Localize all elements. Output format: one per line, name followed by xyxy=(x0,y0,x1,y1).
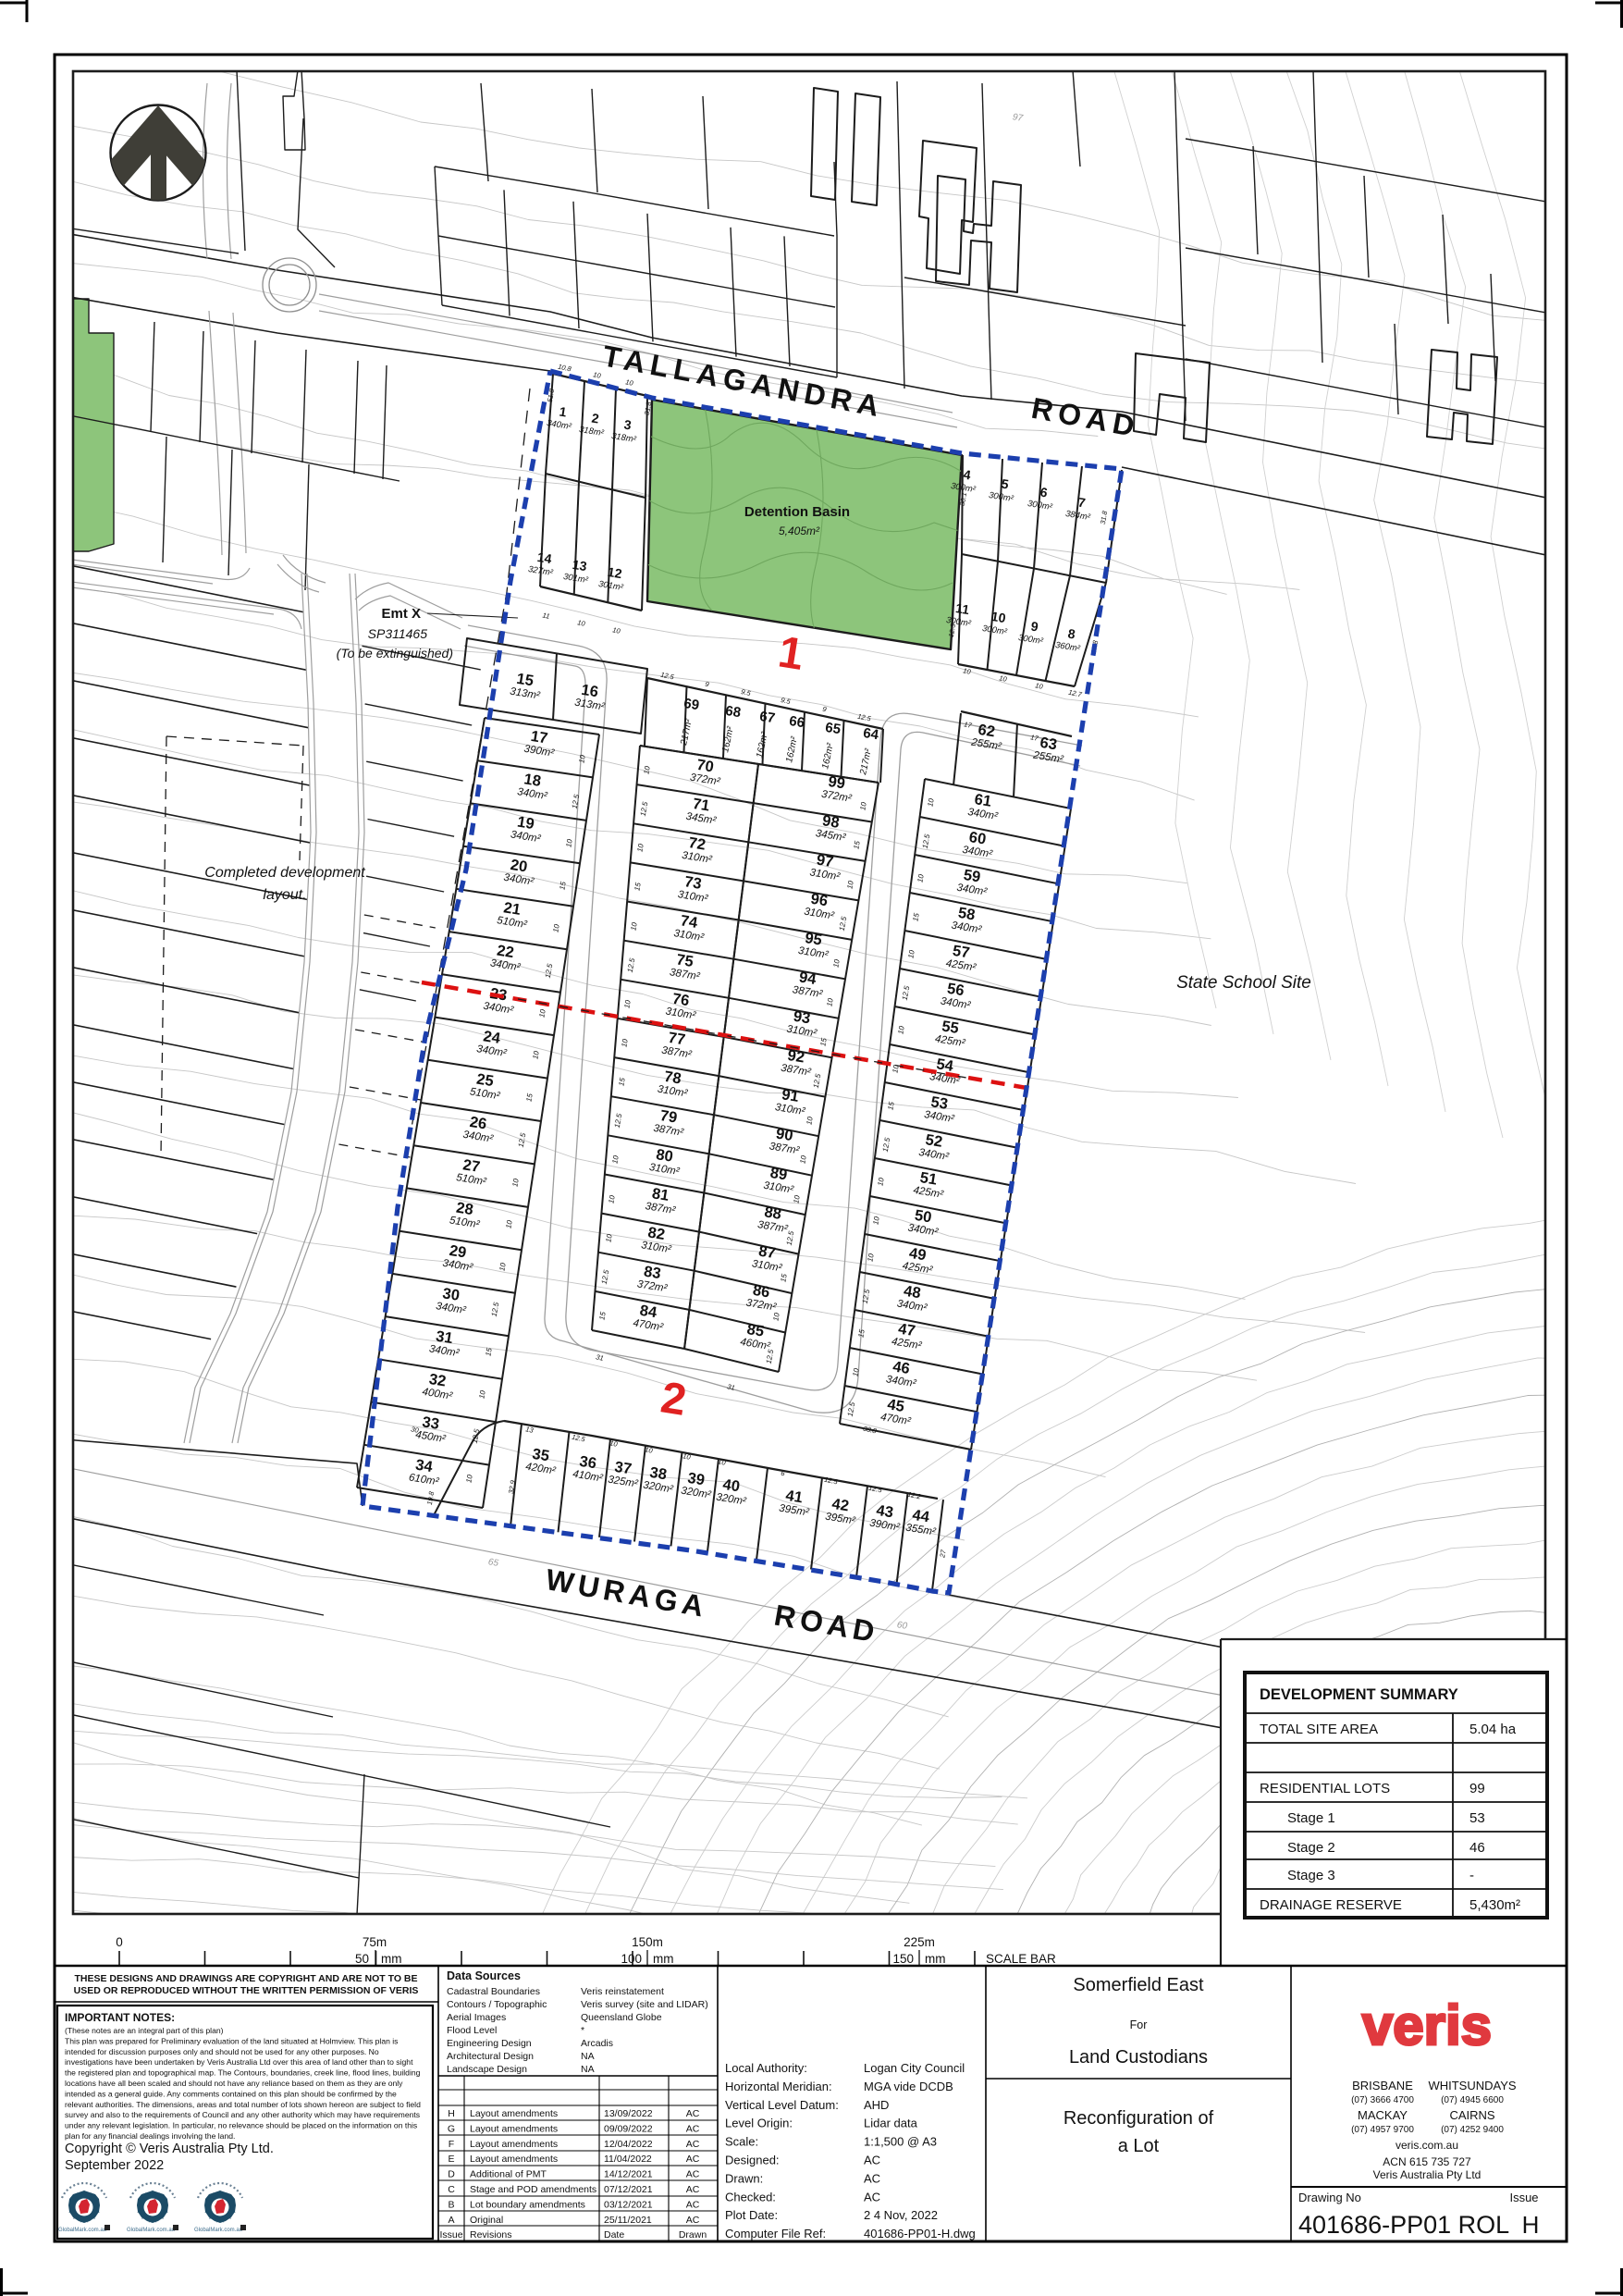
svg-text:Contours / Topographic: Contours / Topographic xyxy=(447,1999,547,2010)
svg-text:MGA vide DCDB: MGA vide DCDB xyxy=(864,2080,953,2093)
svg-text:Emt X: Emt X xyxy=(381,606,421,622)
svg-text:SCALE BAR: SCALE BAR xyxy=(986,1952,1056,1966)
svg-text:survey and also to the require: survey and also to the requirements of C… xyxy=(65,2110,420,2119)
svg-text:AC: AC xyxy=(686,2123,700,2134)
svg-text:14/12/2021: 14/12/2021 xyxy=(604,2169,653,2180)
svg-text:13: 13 xyxy=(572,557,588,574)
svg-text:intended for discussion purpos: intended for discussion purposes only an… xyxy=(65,2047,379,2056)
svg-text:DEVELOPMENT SUMMARY: DEVELOPMENT SUMMARY xyxy=(1260,1686,1458,1703)
svg-text:DRAINAGE RESERVE: DRAINAGE RESERVE xyxy=(1260,1897,1402,1913)
svg-text:25/11/2021: 25/11/2021 xyxy=(604,2215,652,2226)
svg-text:THESE DESIGNS AND DRAWINGS ARE: THESE DESIGNS AND DRAWINGS ARE COPYRIGHT… xyxy=(74,1973,417,1984)
svg-text:USED OR REPRODUCED WITHOUT THE: USED OR REPRODUCED WITHOUT THE WRITTEN P… xyxy=(74,1985,419,1996)
svg-text:WHITSUNDAYS: WHITSUNDAYS xyxy=(1428,2079,1516,2092)
svg-text:Lidar data: Lidar data xyxy=(864,2117,918,2130)
svg-text:September 2022: September 2022 xyxy=(65,2158,164,2173)
svg-text:97: 97 xyxy=(1012,112,1024,124)
svg-text:AC: AC xyxy=(686,2215,700,2226)
svg-text:AHD: AHD xyxy=(864,2098,889,2112)
svg-text:Layout amendments: Layout amendments xyxy=(470,2139,558,2150)
svg-text:65: 65 xyxy=(487,1557,499,1569)
svg-text:5.04 ha: 5.04 ha xyxy=(1469,1722,1517,1737)
svg-text:Vertical Level Datum:: Vertical Level Datum: xyxy=(725,2098,839,2112)
svg-text:AC: AC xyxy=(686,2169,700,2180)
svg-text:13/09/2022: 13/09/2022 xyxy=(604,2108,653,2119)
svg-text:Horizontal Meridian:: Horizontal Meridian: xyxy=(725,2080,832,2093)
svg-text:Land Custodians: Land Custodians xyxy=(1069,2047,1208,2068)
svg-text:Reconfiguration of: Reconfiguration of xyxy=(1064,2108,1214,2129)
svg-text:150: 150 xyxy=(892,1952,914,1966)
svg-text:Veris reinstatement: Veris reinstatement xyxy=(581,1986,664,1997)
svg-text:09/09/2022: 09/09/2022 xyxy=(604,2123,653,2134)
svg-text:Revisions: Revisions xyxy=(470,2229,512,2240)
svg-text:This plan was prepared for Pre: This plan was prepared for Preliminary e… xyxy=(65,2036,398,2045)
svg-text:TOTAL SITE AREA: TOTAL SITE AREA xyxy=(1260,1722,1378,1737)
svg-text:Somerfield East: Somerfield East xyxy=(1073,1975,1204,1995)
svg-text:intended as a general guide.: intended as a general guide. Any comment… xyxy=(65,2089,397,2098)
svg-text:Engineering Design: Engineering Design xyxy=(447,2038,532,2049)
svg-text:Local Authority:: Local Authority: xyxy=(725,2061,807,2075)
svg-text:Data Sources: Data Sources xyxy=(447,1969,521,1982)
svg-text:B: B xyxy=(448,2199,454,2210)
svg-text:0: 0 xyxy=(116,1935,123,1949)
svg-text:mm: mm xyxy=(653,1952,674,1966)
svg-text:225m: 225m xyxy=(904,1935,935,1949)
svg-text:68: 68 xyxy=(724,703,742,721)
svg-text:veris: veris xyxy=(1362,1994,1492,2056)
svg-text:Stage and POD amendments: Stage and POD amendments xyxy=(470,2184,596,2195)
svg-text:Plot Date:: Plot Date: xyxy=(725,2208,778,2222)
svg-text:H: H xyxy=(1522,2211,1540,2239)
svg-text:66: 66 xyxy=(788,713,805,731)
svg-text:Cadastral Boundaries: Cadastral Boundaries xyxy=(447,1986,540,1997)
svg-text:60: 60 xyxy=(896,1620,908,1632)
svg-text:G: G xyxy=(448,2123,455,2134)
svg-text:locations have all been scaled: locations have all been scaled and shoul… xyxy=(65,2079,403,2088)
svg-text:(These notes are an integral p: (These notes are an integral part of thi… xyxy=(65,2026,224,2035)
svg-text:401686-PP01-H.dwg: 401686-PP01-H.dwg xyxy=(864,2227,976,2240)
svg-text:Aerial Images: Aerial Images xyxy=(447,2012,506,2023)
svg-text:03/12/2021: 03/12/2021 xyxy=(604,2199,653,2210)
svg-text:75m: 75m xyxy=(363,1935,387,1949)
svg-text:E: E xyxy=(448,2154,454,2165)
svg-text:veris.com.au: veris.com.au xyxy=(1396,2139,1458,2152)
svg-text:Date: Date xyxy=(604,2229,624,2240)
svg-text:GlobalMark.com.au: GlobalMark.com.au xyxy=(194,2228,242,2233)
svg-text:(07) 4957 9700: (07) 4957 9700 xyxy=(1351,2125,1414,2135)
svg-text:14: 14 xyxy=(536,549,553,566)
svg-text:64: 64 xyxy=(862,725,880,744)
svg-text:Completed development: Completed development xyxy=(204,865,365,881)
svg-text:(07) 4252 9400: (07) 4252 9400 xyxy=(1441,2125,1504,2135)
svg-text:12/04/2022: 12/04/2022 xyxy=(604,2139,653,2150)
svg-text:relevant authorities. The dim: relevant authorities. The dimensions, ar… xyxy=(65,2100,421,2109)
svg-text:AC: AC xyxy=(864,2154,880,2167)
svg-text:layout.: layout. xyxy=(263,887,306,903)
svg-text:Computer File Ref:: Computer File Ref: xyxy=(725,2227,826,2240)
svg-text:State School Site: State School Site xyxy=(1176,973,1311,993)
svg-text:401686-PP01 ROL: 401686-PP01 ROL xyxy=(1298,2211,1509,2239)
svg-text:AC: AC xyxy=(686,2199,700,2210)
svg-text:ACN 615 735 727: ACN 615 735 727 xyxy=(1383,2155,1471,2168)
svg-text:Level Origin:: Level Origin: xyxy=(725,2117,793,2130)
svg-text:Drawn: Drawn xyxy=(679,2229,707,2240)
svg-text:100: 100 xyxy=(621,1952,642,1966)
svg-text:(To be extinguished): (To be extinguished) xyxy=(337,646,453,660)
svg-text:(07) 3666 4700: (07) 3666 4700 xyxy=(1351,2095,1414,2105)
svg-text:NA: NA xyxy=(581,2051,595,2062)
svg-text:69: 69 xyxy=(682,696,700,713)
svg-text:BRISBANE: BRISBANE xyxy=(1352,2079,1413,2092)
svg-text:Stage 3: Stage 3 xyxy=(1287,1868,1335,1883)
svg-text:Layout amendments: Layout amendments xyxy=(470,2154,558,2165)
svg-text:Flood Level: Flood Level xyxy=(447,2025,497,2036)
svg-text:Scale:: Scale: xyxy=(725,2135,758,2149)
svg-text:Stage 2: Stage 2 xyxy=(1287,1840,1335,1856)
svg-text:AC: AC xyxy=(864,2171,880,2185)
svg-text:Drawing No: Drawing No xyxy=(1298,2191,1361,2204)
svg-text:AC: AC xyxy=(864,2190,880,2203)
svg-text:Layout amendments: Layout amendments xyxy=(470,2123,558,2134)
svg-text:Architectural Design: Architectural Design xyxy=(447,2051,534,2062)
svg-text:5,430m²: 5,430m² xyxy=(1469,1897,1520,1913)
svg-text:Layout amendments: Layout amendments xyxy=(470,2108,558,2119)
svg-text:C: C xyxy=(448,2184,455,2195)
svg-text:Issue: Issue xyxy=(439,2229,462,2240)
svg-text:1:1,500 @ A3: 1:1,500 @ A3 xyxy=(864,2135,937,2149)
svg-text:Checked:: Checked: xyxy=(725,2190,776,2203)
svg-text:11: 11 xyxy=(954,600,970,617)
svg-text:F: F xyxy=(449,2139,454,2150)
svg-text:a Lot: a Lot xyxy=(1118,2136,1160,2156)
svg-text:For: For xyxy=(1130,2018,1148,2031)
svg-text:AC: AC xyxy=(686,2154,700,2165)
svg-text:plan for any financial dealing: plan for any financial dealings involvin… xyxy=(65,2131,235,2141)
svg-text:65: 65 xyxy=(824,720,842,737)
svg-text:Veris survey (site and LIDAR): Veris survey (site and LIDAR) xyxy=(581,1999,708,2010)
svg-text:Veris Australia Pty Ltd: Veris Australia Pty Ltd xyxy=(1373,2168,1482,2181)
svg-text:mm: mm xyxy=(381,1952,402,1966)
svg-text:Queensland Globe: Queensland Globe xyxy=(581,2012,662,2023)
svg-text:5,405m²: 5,405m² xyxy=(779,525,820,537)
svg-text:53: 53 xyxy=(1469,1810,1485,1826)
svg-text:Lot boundary amendments: Lot boundary amendments xyxy=(470,2199,585,2210)
svg-text:2 4 Nov, 2022: 2 4 Nov, 2022 xyxy=(864,2208,938,2222)
svg-text:11/04/2022: 11/04/2022 xyxy=(604,2154,652,2165)
svg-text:12: 12 xyxy=(607,564,623,581)
svg-text:Copyright © Veris Australia Pt: Copyright © Veris Australia Pty Ltd. xyxy=(65,2142,274,2156)
svg-text:Landscape Design: Landscape Design xyxy=(447,2064,527,2075)
svg-text:(07) 4945 6600: (07) 4945 6600 xyxy=(1441,2095,1504,2105)
svg-text:Designed:: Designed: xyxy=(725,2154,780,2167)
svg-text:67: 67 xyxy=(758,709,776,726)
svg-text:under any relevant legislation: under any relevant legislation. In parti… xyxy=(65,2121,417,2130)
svg-text:Detention Basin: Detention Basin xyxy=(744,504,850,520)
svg-text:investigations have been under: investigations have been undertaken by V… xyxy=(65,2057,413,2067)
svg-text:GlobalMark.com.au: GlobalMark.com.au xyxy=(58,2228,106,2233)
svg-text:IMPORTANT NOTES:: IMPORTANT NOTES: xyxy=(65,2011,175,2024)
svg-text:Arcadis: Arcadis xyxy=(581,2038,613,2049)
svg-text:Issue: Issue xyxy=(1509,2191,1538,2204)
svg-text:150m: 150m xyxy=(632,1935,663,1949)
svg-text:AC: AC xyxy=(686,2108,700,2119)
svg-text:10: 10 xyxy=(990,609,1007,625)
svg-text:SP311465: SP311465 xyxy=(368,626,428,641)
svg-text:MACKAY: MACKAY xyxy=(1358,2108,1408,2122)
svg-text:the registered plan and topogr: the registered plan and topographical ma… xyxy=(65,2068,421,2078)
svg-text:99: 99 xyxy=(1469,1781,1485,1796)
svg-text:A: A xyxy=(448,2215,454,2226)
svg-text:AC: AC xyxy=(686,2184,700,2195)
svg-text:Drawn:: Drawn: xyxy=(725,2171,763,2185)
svg-text:-: - xyxy=(1469,1868,1474,1883)
svg-text:50: 50 xyxy=(355,1952,369,1966)
svg-text:46: 46 xyxy=(1469,1840,1485,1856)
svg-text:RESIDENTIAL LOTS: RESIDENTIAL LOTS xyxy=(1260,1781,1390,1796)
svg-text:07/12/2021: 07/12/2021 xyxy=(604,2184,653,2195)
svg-text:CAIRNS: CAIRNS xyxy=(1449,2108,1494,2122)
svg-text:*: * xyxy=(581,2025,584,2036)
svg-text:D: D xyxy=(448,2169,455,2180)
svg-text:Stage 1: Stage 1 xyxy=(1287,1810,1335,1826)
svg-text:H: H xyxy=(448,2108,455,2119)
svg-text:Logan City Council: Logan City Council xyxy=(864,2061,965,2075)
svg-text:GlobalMark.com.au: GlobalMark.com.au xyxy=(127,2228,175,2233)
svg-text:mm: mm xyxy=(925,1952,946,1966)
svg-text:Additional of PMT: Additional of PMT xyxy=(470,2169,547,2180)
svg-text:NA: NA xyxy=(581,2064,595,2075)
svg-text:Original: Original xyxy=(470,2215,503,2226)
svg-text:AC: AC xyxy=(686,2139,700,2150)
